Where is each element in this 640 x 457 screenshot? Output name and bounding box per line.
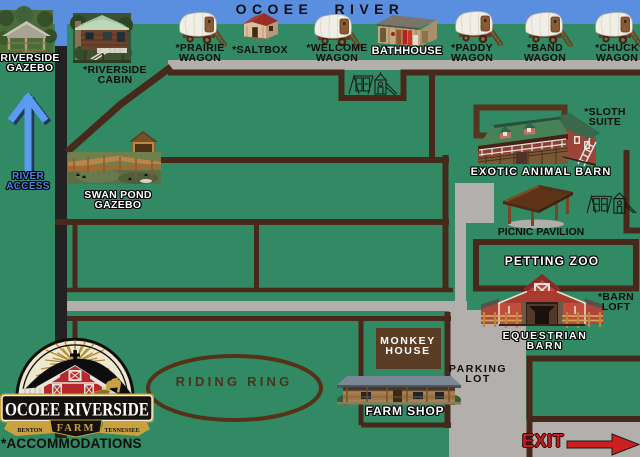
svg-text:BENTON: BENTON xyxy=(17,428,43,434)
svg-text:TENNESSEE: TENNESSEE xyxy=(104,428,139,434)
svg-text:FARM: FARM xyxy=(57,423,96,434)
svg-text:OCOEE RIVERSIDE: OCOEE RIVERSIDE xyxy=(5,400,149,421)
